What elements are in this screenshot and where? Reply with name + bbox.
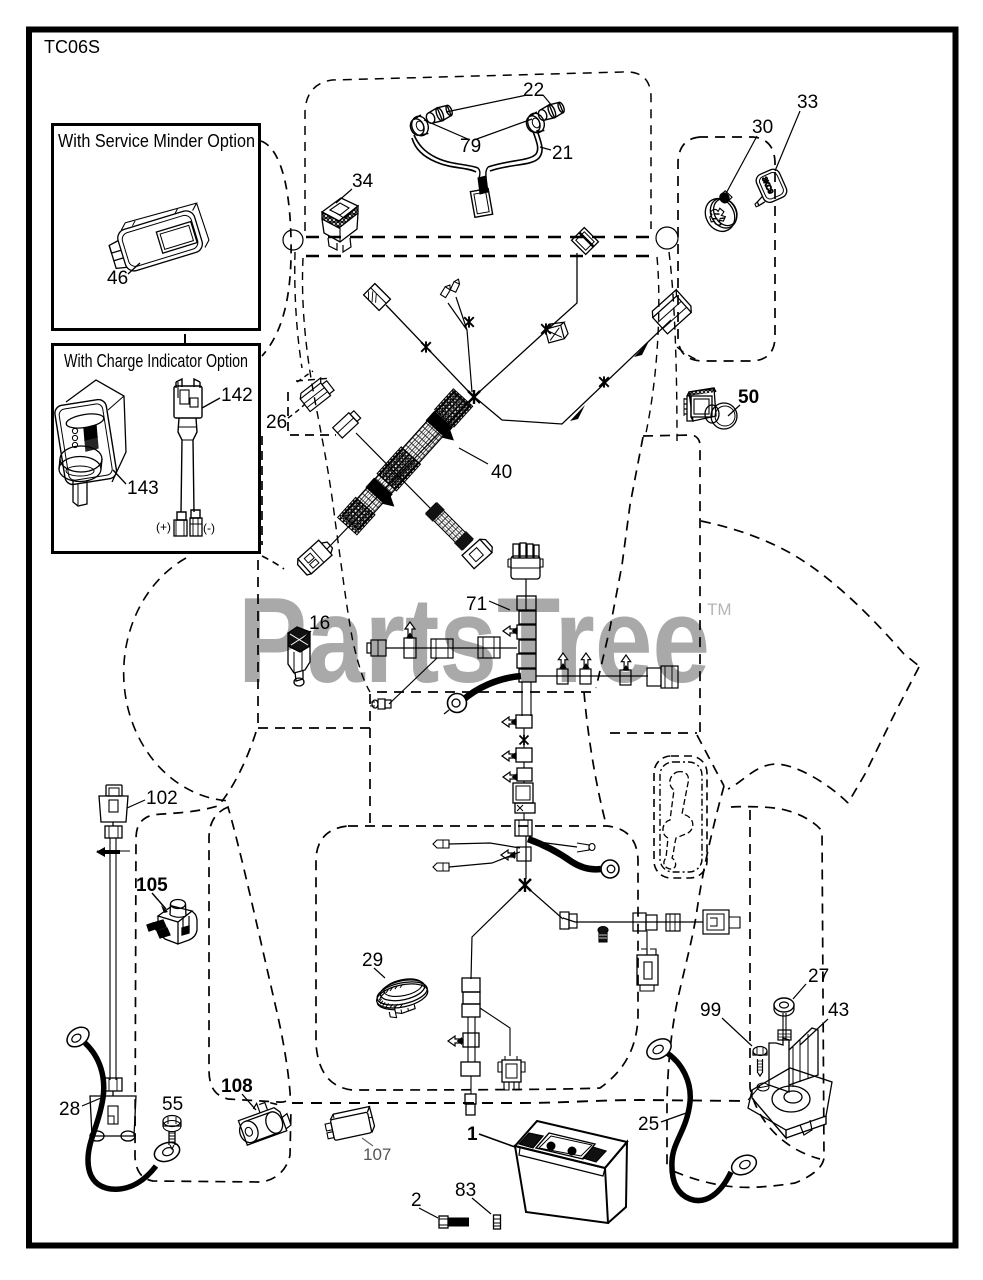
svg-text:83: 83 — [455, 1180, 476, 1201]
svg-text:TM: TM — [707, 600, 732, 619]
svg-text:16: 16 — [309, 613, 330, 634]
svg-text:99: 99 — [700, 1000, 721, 1021]
svg-text:107: 107 — [363, 1145, 391, 1164]
svg-text:142: 142 — [221, 385, 253, 406]
svg-text:30: 30 — [752, 117, 773, 138]
svg-text:With Charge Indicator Option: With Charge Indicator Option — [64, 351, 248, 371]
svg-text:26: 26 — [266, 412, 287, 433]
svg-text:102: 102 — [146, 788, 178, 809]
svg-text:29: 29 — [362, 950, 383, 971]
svg-text:43: 43 — [828, 1000, 849, 1021]
svg-text:(-): (-) — [203, 521, 215, 535]
svg-text:40: 40 — [491, 462, 512, 483]
svg-text:With Service Minder Option: With Service Minder Option — [58, 131, 255, 151]
svg-text:71: 71 — [466, 594, 487, 615]
svg-text:33: 33 — [797, 92, 818, 113]
svg-text:79: 79 — [460, 136, 481, 157]
svg-text:143: 143 — [127, 478, 159, 499]
svg-text:108: 108 — [221, 1076, 253, 1097]
svg-text:46: 46 — [107, 268, 128, 289]
svg-text:22: 22 — [523, 80, 544, 101]
svg-text:(+): (+) — [156, 520, 171, 534]
svg-text:28: 28 — [59, 1099, 80, 1120]
svg-text:21: 21 — [552, 143, 573, 164]
svg-text:1: 1 — [467, 1124, 478, 1145]
svg-text:27: 27 — [808, 966, 829, 987]
svg-text:55: 55 — [162, 1094, 183, 1115]
svg-text:TC06S: TC06S — [44, 37, 100, 57]
svg-text:50: 50 — [738, 387, 759, 408]
svg-text:105: 105 — [136, 875, 168, 896]
svg-text:34: 34 — [352, 171, 374, 192]
svg-text:25: 25 — [638, 1114, 659, 1135]
